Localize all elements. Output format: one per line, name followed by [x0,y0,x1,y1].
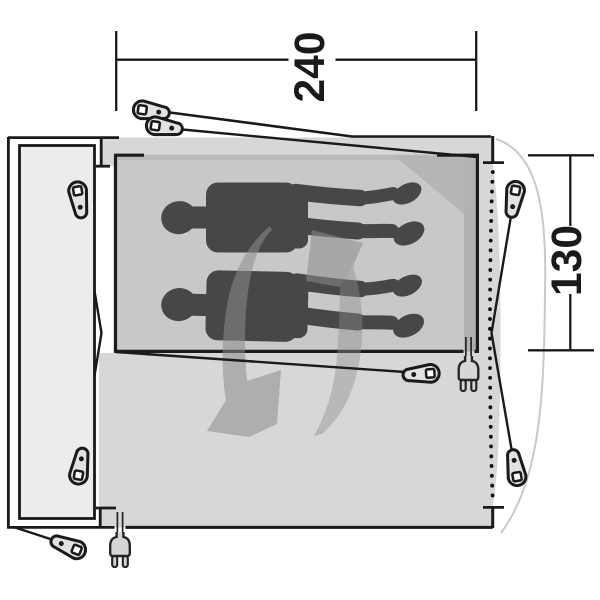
svg-text:130: 130 [544,225,591,296]
svg-text:240: 240 [287,32,334,103]
